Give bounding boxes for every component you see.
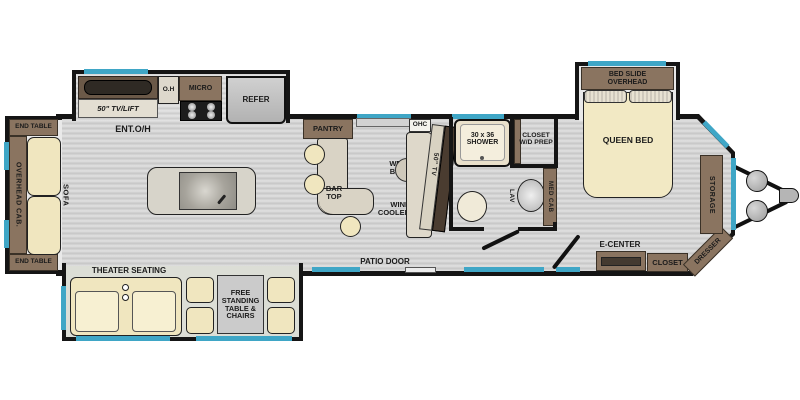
bar-stool [304,144,325,165]
window [556,267,580,272]
pillow [584,90,627,103]
oh-label: O.H [158,76,179,104]
propane-tank-2 [746,200,768,222]
window [464,267,544,272]
e-center-label: E-CENTER [590,240,650,251]
lav-sink [517,179,545,212]
dining-chair [267,277,295,303]
window [731,158,736,230]
sofa [27,196,61,255]
refer-label: REFER [226,76,286,124]
end-table-label: END TABLE [9,254,58,271]
dining-chair [186,307,214,334]
end-table-label: END TABLE [9,119,58,136]
dining-chair [186,277,214,303]
window [76,336,170,341]
e-center-tv [601,257,641,266]
closet-label: CLOSET [647,253,688,272]
cup-holder [122,294,129,301]
sofa-label: SOFA [60,178,71,212]
ent-oh-label: ENT.O/H [86,123,180,136]
pantry-label: PANTRY [303,119,353,139]
bedroom-wall-stub [553,222,557,231]
closet-wd-label: CLOSETW/D PREP [514,128,558,150]
window [84,69,148,74]
floorplan-canvas: END TABLE END TABLE OVERHEAD CAB. SOFA 5… [0,0,800,400]
bed-slide-overhead-label: BED SLIDEOVERHEAD [581,67,674,90]
bath-wall-left [449,117,453,231]
window [588,61,666,66]
tv-screen [84,80,152,95]
propane-tank-1 [746,170,768,192]
storage-label: STORAGE [700,155,723,234]
island-sink [179,172,237,210]
window [61,286,66,330]
stove-cooktop [180,101,222,121]
lav-label: LAV [505,182,516,210]
shower-label: 30 x 36SHOWER [454,124,511,154]
micro-label: MICRO [179,76,222,101]
bar-top-label: BARTOP [320,182,348,204]
ohc-cabinet [356,118,411,127]
queen-bed-label: QUEEN BED [583,132,673,148]
window [196,336,292,341]
tv-lift-label: 50" TV/LIFT [78,99,158,118]
cup-holder [122,284,129,291]
pillow [629,90,672,103]
wine-cooler-label: WINECOOLER [370,199,410,219]
hitch-coupler [779,188,799,203]
sofa [27,137,61,196]
bar-stool [340,216,361,237]
patio-door-label: PATIO DOOR [352,257,418,268]
bath-bottom-wall [449,227,484,231]
bath-bottom-wall [518,227,557,231]
med-cab-label: MED CAB [543,168,557,226]
free-standing-table-label: FREESTANDING TABLE &CHAIRS [213,277,268,332]
overhead-cab-label: OVERHEAD CAB. [9,136,27,254]
ohc-label: OHC [409,119,431,132]
dining-chair [267,307,295,334]
shower-drain [480,156,484,160]
theater-seating-label: THEATER SEATING [84,265,174,277]
theater-seating [70,277,182,336]
